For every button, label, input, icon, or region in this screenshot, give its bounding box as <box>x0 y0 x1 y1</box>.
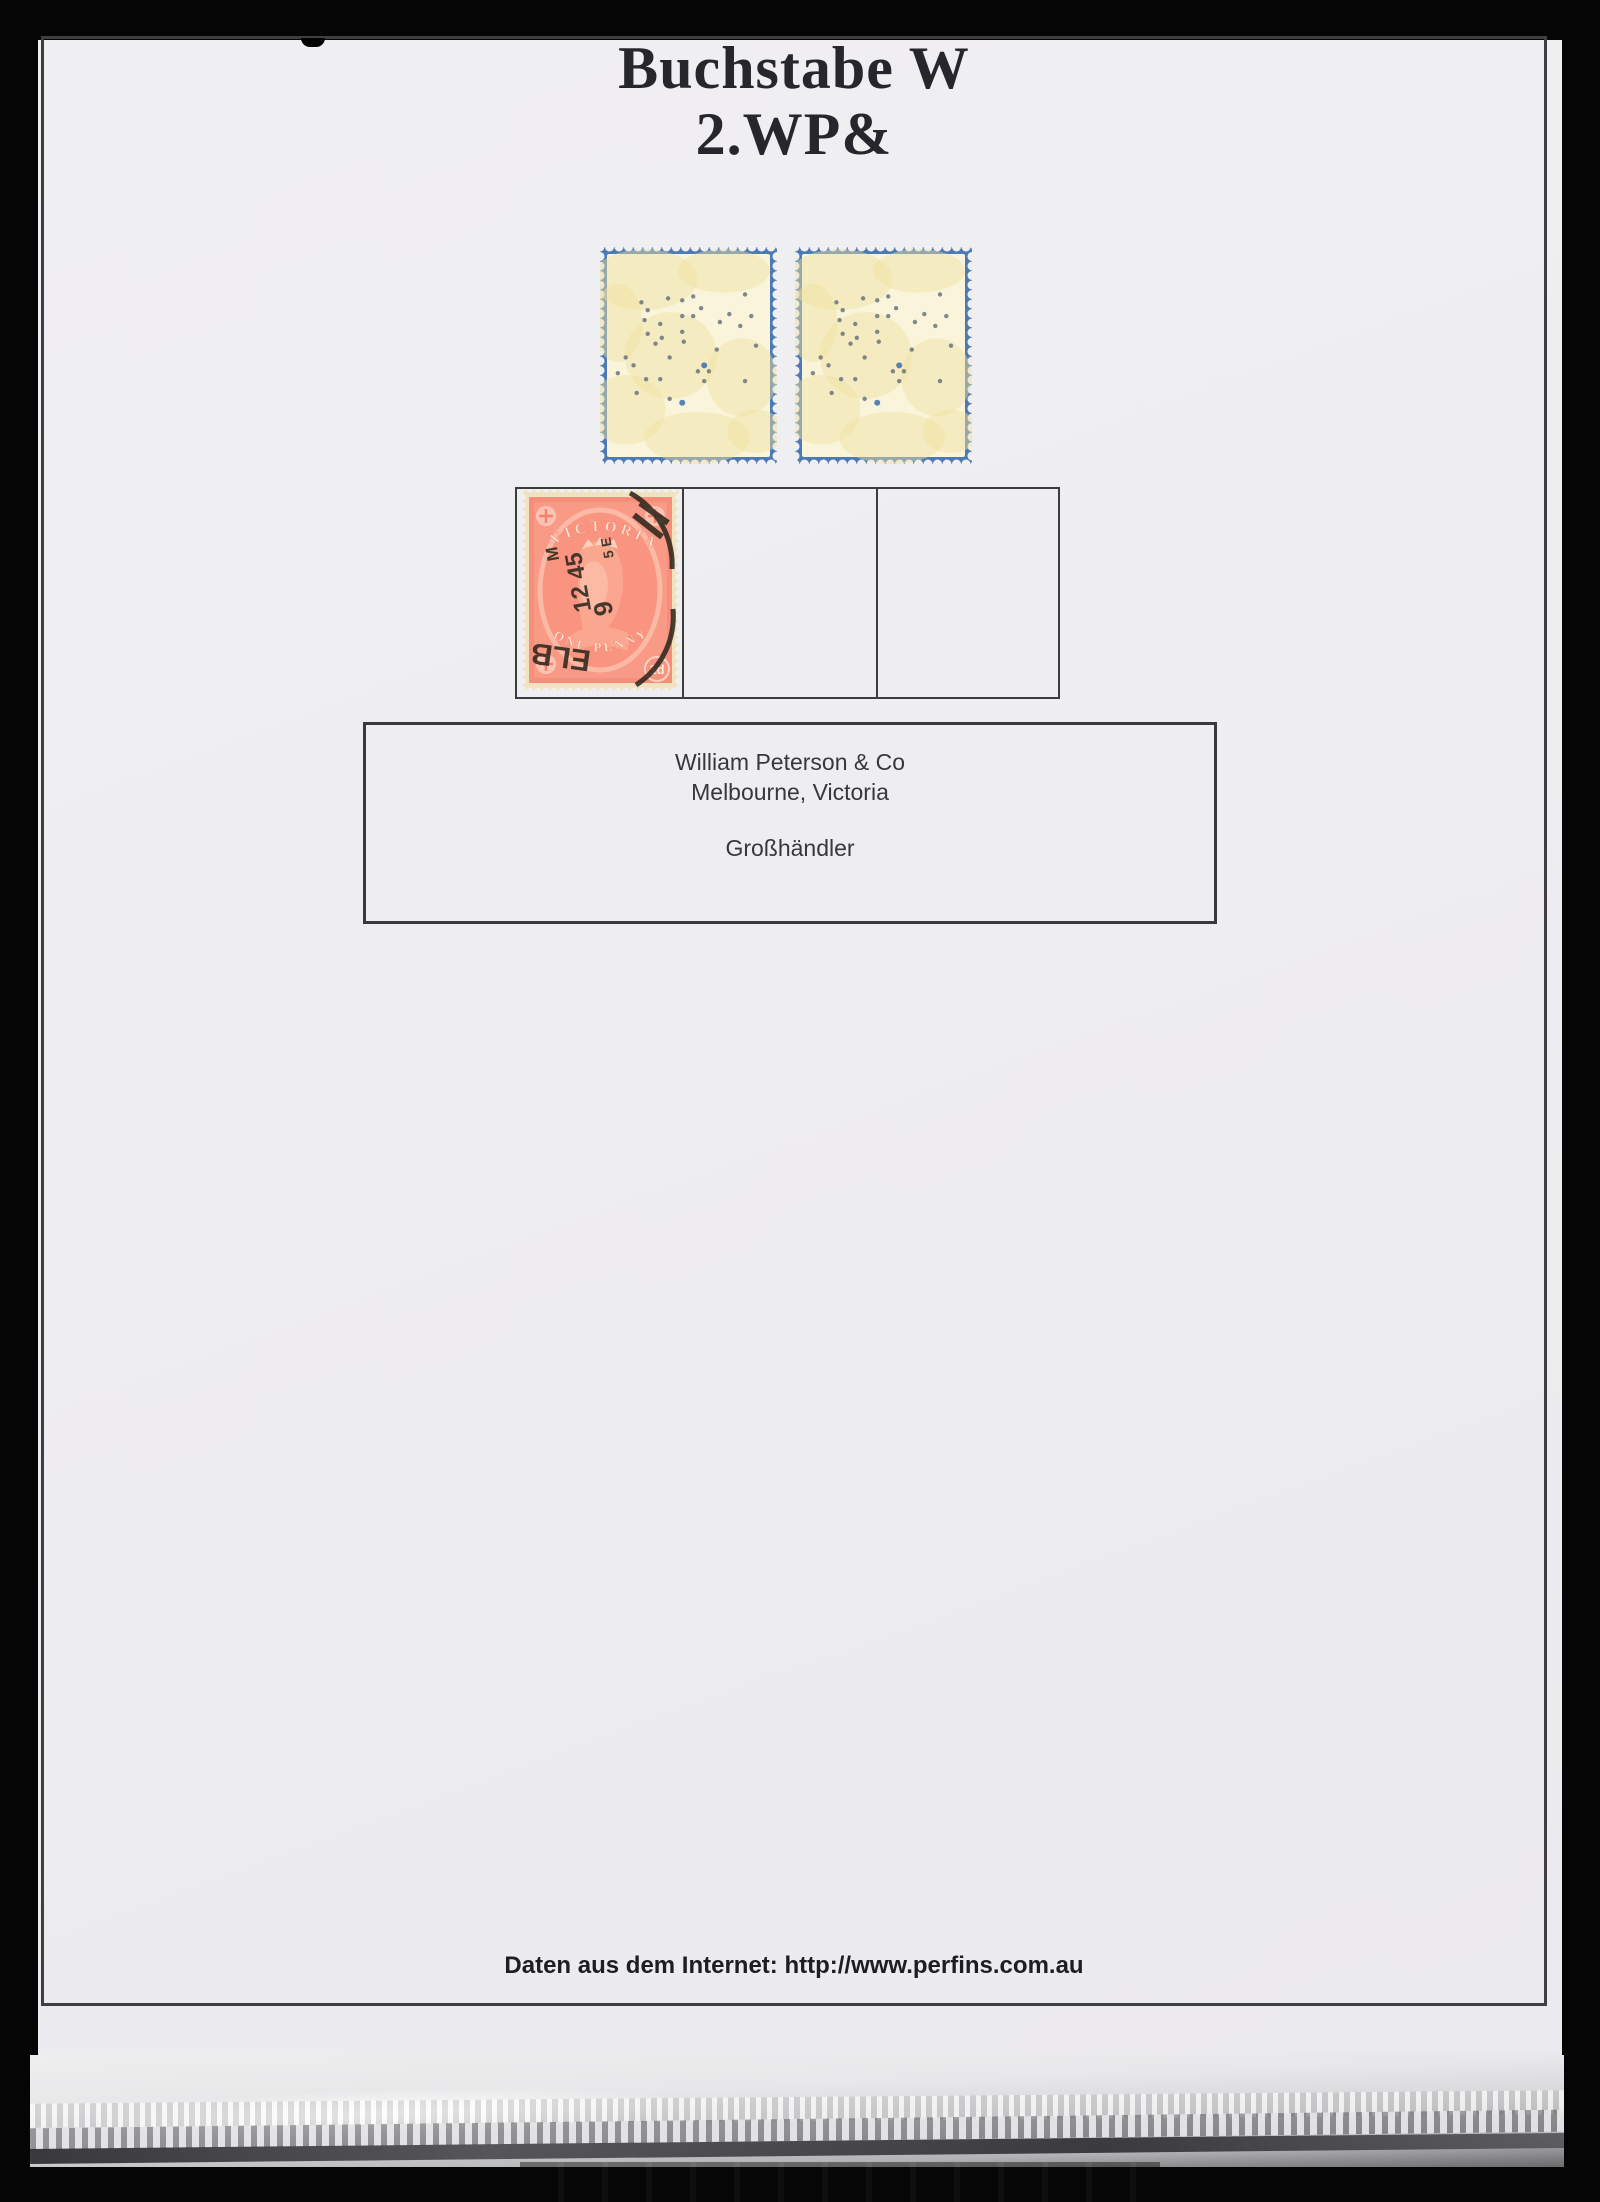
victoria-one-penny-stamp: VICTORIA ONE PENNY 1d M 12 45 9 5 E ELB <box>522 489 679 691</box>
plastic-sleeve-edge <box>30 2055 1564 2167</box>
page-title: Buchstabe W <box>44 34 1544 103</box>
page-border-frame <box>41 36 1547 2006</box>
footer-credit: Daten aus dem Internet: http://www.perfi… <box>44 1952 1544 1980</box>
company-info-box: William Peterson & Co Melbourne, Victori… <box>363 722 1217 924</box>
perfin-stamp-graphic <box>795 247 972 464</box>
perfin-stamp-back-1 <box>600 247 777 464</box>
perfin-stamp-back-2 <box>795 247 972 464</box>
perfin-stamp-graphic <box>600 247 777 464</box>
page-subtitle: 2.WP& <box>44 100 1544 169</box>
table-cell-3 <box>878 489 1058 697</box>
company-name: William Peterson & Co <box>366 747 1214 777</box>
company-descriptor: Großhändler <box>366 833 1214 863</box>
company-location: Melbourne, Victoria <box>366 777 1214 807</box>
album-page: Buchstabe W 2.WP& <box>38 40 1562 2115</box>
victoria-stamp-graphic: VICTORIA ONE PENNY 1d M 12 45 9 5 E ELB <box>522 489 679 691</box>
spacer <box>366 807 1214 833</box>
table-cell-2 <box>684 489 878 697</box>
sleeve-bottom-stripes <box>520 2162 1160 2202</box>
